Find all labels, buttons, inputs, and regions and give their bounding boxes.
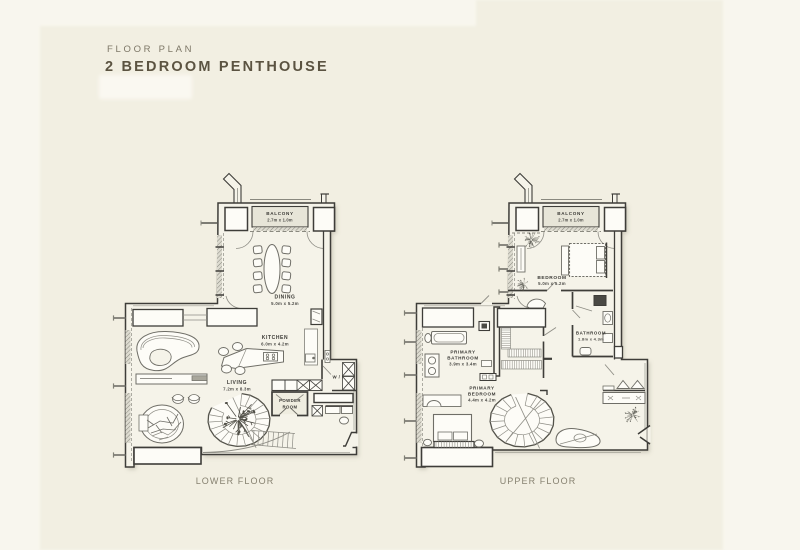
svg-text:LIVING: LIVING (227, 380, 247, 386)
svg-text:PRIMARY: PRIMARY (450, 350, 475, 355)
svg-text:2.7m x 1.0m: 2.7m x 1.0m (267, 218, 293, 223)
svg-text:DINING: DINING (274, 295, 295, 301)
svg-text:BATHROOM: BATHROOM (576, 331, 606, 336)
svg-text:5.0m x 5.2m: 5.0m x 5.2m (271, 301, 299, 306)
svg-text:BEDROOM: BEDROOM (468, 392, 496, 397)
svg-text:3.9m x 3.4m: 3.9m x 3.4m (449, 362, 477, 367)
svg-text:2.7m x 1.0m: 2.7m x 1.0m (558, 218, 584, 223)
svg-text:UPPER FLOOR: UPPER FLOOR (500, 476, 577, 486)
svg-text:1.8m x 4.3m: 1.8m x 4.3m (578, 337, 604, 342)
svg-text:4.4m x 4.2m: 4.4m x 4.2m (468, 398, 496, 403)
svg-text:7.2m x 8.3m: 7.2m x 8.3m (223, 386, 251, 391)
svg-text:BALCONY: BALCONY (266, 211, 294, 216)
svg-text:5.0m x 5.2m: 5.0m x 5.2m (538, 281, 566, 286)
svg-text:PRIMARY: PRIMARY (469, 386, 494, 391)
svg-text:LOWER FLOOR: LOWER FLOOR (196, 476, 275, 486)
svg-text:KITCHEN: KITCHEN (262, 335, 288, 341)
svg-text:BATHROOM: BATHROOM (447, 356, 479, 361)
svg-text:2 BEDROOM PENTHOUSE: 2 BEDROOM PENTHOUSE (105, 59, 329, 75)
svg-text:BALCONY: BALCONY (557, 211, 585, 216)
svg-text:6.0m x 4.2m: 6.0m x 4.2m (261, 341, 289, 346)
svg-text:POWDER: POWDER (279, 398, 301, 403)
svg-text:FLOOR PLAN: FLOOR PLAN (107, 44, 194, 55)
svg-text:ROOM: ROOM (283, 405, 298, 410)
